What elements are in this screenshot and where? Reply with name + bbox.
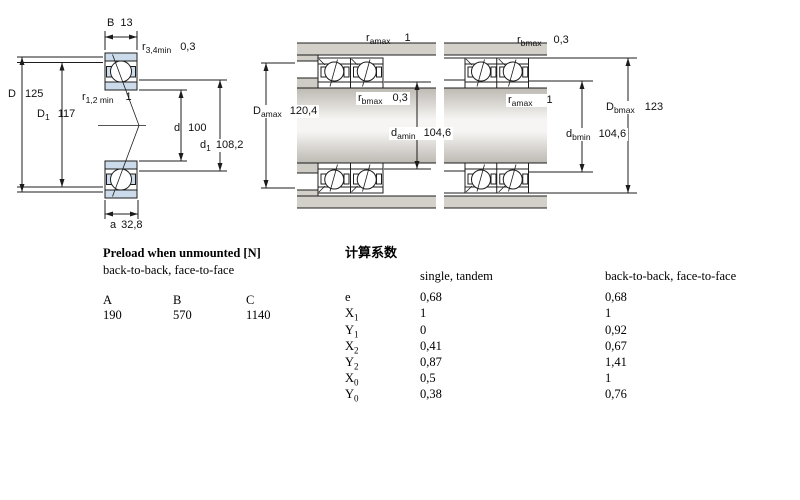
dim-label-ramax-b: ramax1 [506, 94, 555, 107]
preload-title: Preload when unmounted [N] [103, 246, 271, 260]
factor-row-Y0: Y00,380,76 [345, 386, 736, 402]
dim-label-d: d100 [174, 122, 206, 135]
dim-label-damin: damin104,6 [389, 127, 453, 140]
preload-subtitle: back-to-back, face-to-face [103, 263, 271, 277]
paired-bearing-a-side [261, 43, 436, 208]
dim-label-rbmax-b: rbmax0,3 [517, 34, 569, 47]
factors-header-row: single, tandemback-to-back, face-to-face [345, 268, 736, 284]
col-back-to-back: back-to-back, face-to-face [605, 268, 736, 284]
dim-label-Dbmax: Dbmax123 [604, 101, 665, 114]
factors-rows: e0,680,68 X111 Y100,92 X20,410,67 Y20,87… [345, 289, 736, 402]
factor-row-Y1: Y100,92 [345, 322, 736, 338]
dim-label-dbmin: dbmin104,6 [564, 128, 628, 141]
factor-row-X2: X20,410,67 [345, 338, 736, 354]
factor-row-e: e0,680,68 [345, 289, 736, 305]
dim-label-d1: d1108,2 [198, 139, 245, 152]
dim-label-r12: r1,2 min1 [82, 91, 132, 104]
bearing-spec-page: B13 r3,4min0,3 D125 D1117 r1,2 min1 d100… [0, 0, 800, 500]
factors-title: 计算系数 [345, 246, 736, 260]
dim-label-D: D125 [8, 88, 43, 101]
factor-row-X0: X00,51 [345, 370, 736, 386]
preload-header-row: ABC [103, 293, 271, 308]
paired-bearing-b-side [444, 43, 637, 208]
dim-label-a: a32,8 [110, 219, 143, 232]
dim-label-ramax-a: ramax1 [366, 32, 411, 45]
dim-label-B: B13 [107, 17, 133, 30]
preload-table: Preload when unmounted [N] back-to-back,… [103, 246, 271, 323]
preload-value-row: 1905701140 [103, 308, 271, 323]
dim-label-r34: r3,4min0,3 [142, 41, 195, 54]
calculation-factors-table: 计算系数 single, tandemback-to-back, face-to… [345, 246, 736, 403]
dim-label-rbmax-a: rbmax0,3 [356, 92, 410, 105]
dim-label-Damax: Damax120,4 [251, 105, 319, 118]
single-bearing-cross-section [98, 53, 146, 198]
col-single-tandem: single, tandem [420, 268, 605, 284]
dim-label-D1: D1117 [37, 108, 75, 121]
factor-row-Y2: Y20,871,41 [345, 354, 736, 370]
factor-row-X1: X111 [345, 305, 736, 321]
